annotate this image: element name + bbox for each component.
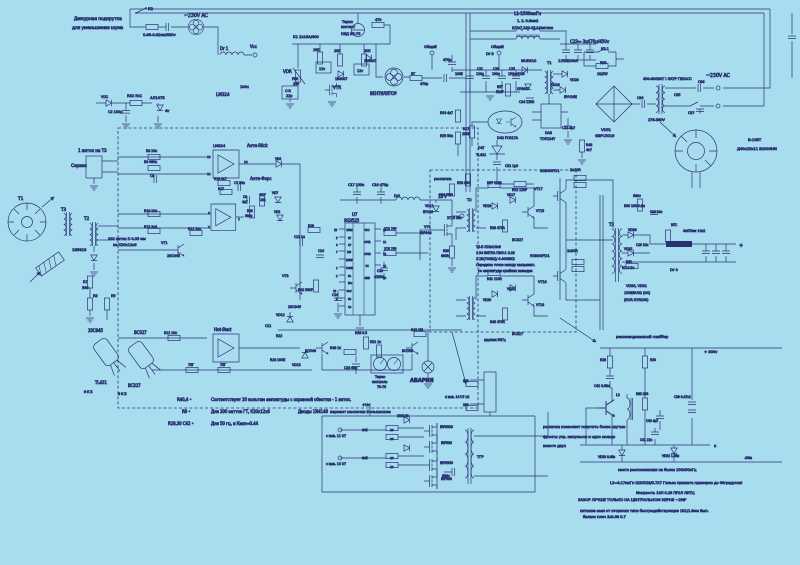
gnd-icon — [154, 124, 162, 128]
schematic-label: DA3 — [545, 131, 552, 135]
schematic-label: 2SC945 — [88, 328, 103, 333]
schematic-label: ВЕНТИЛЯТОР — [370, 91, 397, 96]
gnd-icon — [122, 124, 130, 128]
schematic-label: BC327 — [134, 330, 147, 335]
mosfet-irf530 — [424, 473, 437, 489]
snubber-section — [560, 318, 782, 462]
schematic-label: С29 10н — [636, 243, 648, 247]
schematic-label: 560v — [633, 194, 641, 198]
schematic-label: 12 — [207, 172, 211, 176]
schematic-label: с выв. 11 U7 — [326, 434, 346, 438]
capv-icon — [498, 76, 506, 79]
schematic-label: 380 — [463, 403, 469, 407]
schematic-label: Сервис — [71, 163, 87, 169]
resv-icon — [579, 140, 584, 152]
schematic-label: баланс плеч 2х0.68 0.7 — [583, 515, 626, 519]
capv-icon — [574, 50, 582, 53]
schematic-label: 20 — [390, 465, 394, 469]
schematic-label: R63 200 — [636, 392, 648, 396]
schematic-label: 1 34 ВИТКА ПЭЛ-1 0.28 — [476, 251, 515, 255]
schematic-label: TOP224Y — [539, 137, 556, 141]
schematic-label: 1N4007 — [364, 59, 376, 63]
dio-icon — [275, 197, 281, 203]
schematic-label: Середина точно между выпрямит. — [476, 263, 535, 267]
schematic-label: BYV26E — [564, 95, 577, 99]
schematic-label: раскачка — [434, 176, 452, 181]
capv-icon — [562, 50, 570, 53]
dio-icon — [277, 215, 283, 221]
wire — [94, 226, 118, 270]
wire — [470, 31, 566, 44]
schematic-label: VT15 — [536, 209, 544, 213]
wire — [660, 122, 676, 137]
schematic-label: VD8 — [274, 210, 280, 214]
opamp-anti-force — [211, 204, 236, 231]
schematic-label: контроль — [372, 380, 388, 384]
tl431-icon — [489, 146, 505, 154]
schematic-label: С35 — [674, 93, 680, 97]
wire — [118, 338, 300, 348]
schematic-label: 50B60PD1 — [530, 253, 550, 258]
schematic-label: кружки 50Гц — [484, 338, 506, 342]
caph-icon — [166, 23, 169, 31]
wire — [322, 403, 535, 492]
schematic-label: К1 2х16А/400 — [293, 34, 319, 39]
schematic-label: 4v — [165, 109, 170, 113]
schematic-label: 470р — [443, 58, 451, 62]
schematic-label: 10к — [260, 198, 266, 202]
dio-icon — [510, 197, 516, 203]
wire — [22, 217, 33, 228]
schematic-label: Анти-Stick — [247, 143, 268, 148]
mosfet-irf9530 — [424, 423, 437, 439]
schematic-label: (RUR HY5200) — [624, 298, 649, 302]
caph-icon — [452, 468, 455, 476]
schematic-label: 12 — [383, 264, 387, 268]
capv-icon — [512, 76, 520, 79]
schematic-label: 3 — [208, 211, 210, 215]
schematic-label: Общий — [491, 45, 504, 49]
schematic-label: R17 — [463, 127, 469, 131]
schematic-label: 1 — [336, 266, 338, 270]
resv-icon — [104, 298, 109, 310]
mosfet-irf9530 — [424, 457, 437, 473]
wire — [484, 372, 496, 412]
schematic-label: R41 1М — [411, 328, 423, 332]
schematic-label: Т3 — [608, 222, 614, 227]
schematic-label: 470р — [420, 82, 428, 86]
schematic-label: R9 680к — [144, 160, 157, 164]
capv-icon — [788, 36, 796, 39]
schematic-label: С31 1μ0 — [505, 164, 518, 168]
schematic-label: Dr 1 — [220, 46, 229, 51]
circuit-schematic: Дежурная подкруткадля уменьшения шумаК2~… — [0, 0, 800, 565]
schematic-label: С16 — [332, 293, 338, 297]
resh-icon — [146, 24, 158, 29]
gnd-icon — [578, 160, 586, 164]
npn-icon — [506, 117, 516, 127]
schematic-label: 2SC945 — [288, 305, 301, 309]
schematic-label: VD20 — [483, 298, 491, 302]
resh-icon — [308, 227, 320, 232]
schematic-label: К1.1 — [601, 47, 609, 51]
schematic-label: С3 — [150, 174, 154, 178]
schematic-label: ЗАЗОР ЛУЧШЕ ТОЛЬКО НА ЦЕНТРАЛЬНОМ КЕРНЕ … — [578, 497, 687, 502]
schematic-label: VD30, VD31 — [626, 284, 647, 288]
term-icon — [430, 51, 434, 55]
schematic-label: R28 — [600, 358, 606, 362]
resv-icon — [449, 246, 454, 258]
wire — [580, 348, 782, 462]
schematic-label: 1N4148 — [397, 414, 409, 418]
schematic-label: GND — [365, 276, 371, 280]
wire — [384, 233, 428, 280]
schematic-label: к — [714, 443, 717, 448]
capv-icon — [377, 192, 385, 195]
capv-icon — [122, 111, 130, 114]
schematic-label: 2х30R — [567, 249, 578, 253]
schematic-label: Для 200 ваттов ГТ, К20х12х6 — [211, 409, 270, 414]
schematic-label: VT4 — [424, 225, 431, 229]
schematic-label: 302 витка D 0.35 мм — [108, 237, 146, 241]
schematic-label: VT1 — [161, 241, 167, 245]
resv-icon — [455, 110, 460, 122]
resv-icon — [502, 308, 507, 320]
caph-icon — [154, 175, 157, 183]
schematic-label: 150μ — [508, 72, 516, 76]
wire — [612, 229, 615, 273]
caph-icon — [698, 84, 701, 92]
schematic-label: 680R — [441, 254, 450, 258]
schematic-label: 2 2В(700В2)/ 4-400МК2 — [476, 257, 515, 261]
schematic-label: R12 10к — [164, 331, 177, 335]
led-icon — [157, 105, 163, 111]
capv-icon — [482, 76, 490, 79]
schematic-label: 12v — [357, 69, 363, 73]
gate-transformer-icon — [467, 208, 475, 232]
schematic-label: вариант раскачки Большакова — [330, 409, 391, 414]
mosfet-vt4 — [439, 222, 452, 238]
schematic-label: + 300v — [704, 349, 718, 354]
schematic-label: R12 10к — [188, 227, 201, 231]
schematic-label: R55 56к — [440, 134, 453, 138]
schematic-label: R28 100Е — [270, 358, 285, 362]
schematic-label: Uref — [347, 289, 352, 293]
wire — [135, 12, 137, 14]
schematic-label: OUTB — [364, 252, 371, 256]
schematic-label: R57 — [497, 85, 503, 89]
gnd-icon — [90, 186, 98, 190]
schematic-label: R23 — [247, 209, 253, 213]
wire — [532, 112, 582, 158]
schematic-label: VD7 — [272, 191, 278, 195]
wire — [560, 318, 596, 342]
dio-icon — [492, 291, 498, 297]
wire — [130, 9, 792, 192]
schematic-label: ХТ3 75Р — [384, 227, 397, 231]
schematic-label: 20К — [364, 49, 371, 53]
schematic-label: 70-75 — [377, 385, 386, 389]
resh-icon — [148, 165, 160, 170]
schematic-label: 1 виток на Т3 — [78, 148, 107, 153]
resh-icon — [514, 181, 526, 186]
vcc-terminal — [253, 53, 257, 57]
schematic-label: 278-380V — [648, 118, 665, 122]
schematic-label: R32 5к1 — [127, 93, 143, 98]
schematic-label: вместо двух — [543, 444, 567, 448]
schematic-label: VD51 — [601, 127, 612, 132]
schematic-label: 20К — [334, 49, 341, 53]
schematic-label: Ш7х7 120-15,14витков — [512, 26, 553, 30]
ac-terminal — [716, 86, 720, 90]
schematic-label: 13 — [207, 155, 211, 159]
schematic-label: Hot-Start — [214, 327, 232, 332]
schematic-label: COMP — [346, 266, 354, 270]
schematic-label: контакт — [341, 25, 355, 29]
schematic-label: 100н — [240, 85, 250, 89]
schematic-label: Э К Б — [84, 390, 93, 394]
npn-icon — [316, 342, 328, 354]
schematic-label: R8 10к — [146, 149, 157, 153]
dio-icon — [496, 119, 501, 123]
schematic-label: IRF9530 — [440, 425, 453, 429]
schematic-label: 4к7 — [586, 148, 592, 152]
schematic-label: R3 — [93, 294, 98, 298]
schematic-label: VD11 — [425, 204, 434, 208]
schematic-label: + — [739, 243, 743, 249]
xfv-icon — [90, 222, 98, 246]
schematic-label: Мощность 10Л 0.28 ПР2Л ЛИТЦ — [636, 491, 695, 495]
schematic-label: U7 — [352, 212, 358, 217]
schematic-label: Т3 — [60, 207, 66, 212]
schematic-label: Э К Б — [118, 392, 127, 396]
resv-icon — [363, 337, 368, 349]
schematic-label: С41 22n — [640, 438, 652, 442]
schematic-label: С19 — [377, 269, 383, 273]
tgr-transformer — [468, 428, 471, 484]
schematic-label: SS — [348, 297, 351, 301]
schematic-label: VT17 — [534, 187, 543, 191]
schematic-label: VCC — [365, 228, 370, 232]
schematic-label: VC — [366, 264, 370, 268]
schematic-label: R52 120Р — [512, 188, 527, 192]
schematic-label: Термо — [374, 375, 385, 379]
schematic-label: VD29 — [516, 72, 525, 76]
coil-icon — [220, 52, 244, 55]
schematic-label: R5 — [111, 294, 116, 298]
diode-icon — [106, 100, 112, 106]
schematic-label: 230Р — [462, 132, 470, 136]
caph-icon — [642, 100, 645, 108]
schematic-label: L2 — [616, 393, 620, 397]
schematic-label: R53 390 — [457, 181, 470, 185]
resh-icon — [572, 259, 584, 264]
alarm-lamp-icon — [422, 361, 434, 373]
schematic-label: 11 — [383, 240, 387, 244]
resh-icon — [130, 100, 142, 105]
schematic-label: Dr 3 — [486, 51, 494, 56]
schematic-label: R31 1к — [370, 340, 381, 344]
schematic-label: 6 — [336, 243, 338, 247]
schematic-label: 75Г — [220, 363, 226, 367]
schematic-label: R58 — [600, 61, 606, 65]
schematic-label: TL431 — [94, 380, 107, 385]
schematic-label: R13 2к4 — [144, 225, 157, 229]
schematic-label: C7 33n — [234, 181, 245, 185]
schematic-label: К2 — [148, 6, 154, 11]
wire — [471, 430, 474, 478]
capv-icon — [316, 255, 324, 258]
wire — [656, 86, 659, 112]
schematic-label: R28,30 С42 • — [168, 421, 194, 426]
schematic-label: IRF640 — [420, 231, 432, 235]
schematic-label: C23= 3х470μ/450v — [570, 39, 610, 44]
schematic-label: С40 4μ7 — [646, 419, 658, 423]
schematic-label: 150EBU02 (04) — [624, 291, 651, 295]
schematic-label: VD12 — [276, 313, 285, 317]
transistor-package-icon — [127, 340, 162, 379]
wire — [278, 312, 462, 382]
schematic-label: 380 — [463, 379, 469, 383]
schematic-label: 20 — [390, 456, 394, 460]
schematic-label: VD1 — [101, 95, 108, 99]
schematic-label: Д40х25х11 В2000НМ — [737, 146, 777, 151]
schematic-label: С24 120н — [519, 100, 534, 104]
schematic-label: С22 4μ7 — [562, 126, 575, 130]
schematic-label: место расположения на балке 150А50кГц — [618, 468, 697, 472]
wire — [290, 13, 466, 102]
schematic-label: R37 120R — [487, 181, 503, 185]
schematic-label: NTC — [671, 223, 677, 227]
schematic-label: R43 470R — [490, 320, 506, 324]
schematic-label: 680к — [245, 214, 253, 218]
schematic-label: 1 — [238, 217, 240, 221]
schematic-label: 10/2W — [597, 72, 608, 76]
schematic-label: 1N4007 — [335, 77, 347, 81]
schematic-label: R39 — [443, 249, 449, 253]
capv-icon — [353, 192, 361, 195]
schematic-label: VD21 — [507, 287, 515, 291]
resv-icon — [607, 356, 612, 368]
dio-icon — [433, 206, 439, 212]
schematic-label: RT — [348, 236, 351, 240]
schematic-label: раскачка позволяет получить более крутые — [543, 425, 626, 429]
gnd-icon — [448, 268, 456, 272]
schematic-label: Общий — [424, 45, 437, 49]
gnd-icon — [90, 272, 98, 276]
resv-icon — [505, 84, 510, 96]
main-transformer-core — [615, 228, 618, 282]
schematic-label: ~230V AC — [184, 13, 208, 19]
schematic-label: Т1 — [546, 60, 552, 65]
schematic-label: VDR — [283, 69, 292, 74]
schematic-label: 0.68-0.82мк/630v — [143, 32, 176, 37]
wire — [42, 197, 54, 207]
schematic-label: Т1 — [17, 196, 24, 202]
schematic-label: VD31 — [624, 247, 633, 251]
schematic-label: R10 10к — [144, 209, 157, 213]
schematic-label: VD28 — [570, 78, 579, 82]
schematic-label: 2SC945 — [167, 254, 180, 258]
schematic-label: +Uн — [362, 403, 369, 407]
schematic-label: IN+ — [348, 281, 352, 285]
schematic-label: VT3 — [282, 274, 288, 278]
schematic-label: ~230V AC — [706, 73, 730, 79]
schematic-label: VD18 — [483, 204, 491, 208]
bridge-rectifier-icon — [596, 86, 632, 122]
schematic-label: OUTA — [364, 240, 371, 244]
schematic-label: с выв. 14 U7 — [326, 462, 346, 466]
capv-icon — [448, 62, 456, 65]
schematic-label: SYNC — [347, 228, 354, 232]
schematic-label: Анти-Форс — [250, 176, 271, 181]
schematic-label: С21 — [477, 67, 483, 71]
schematic-label: КЛ-5 Вт — [622, 266, 634, 270]
schematic-label: Термо — [341, 20, 353, 24]
caph-icon — [300, 238, 303, 246]
gate-transformer-icon — [467, 296, 475, 320]
resv-icon — [642, 356, 647, 368]
schematic-label: R48 1к — [330, 346, 341, 350]
opamp-anti-stick — [213, 150, 239, 178]
schematic-label: LM324 — [213, 143, 226, 148]
schematic-label: R60 10R-0.8м — [624, 204, 646, 208]
schematic-label: С28 10н — [650, 210, 662, 214]
schematic-label: L1-1500мкГн — [514, 11, 541, 16]
l2-choke-icon — [627, 398, 633, 420]
schematic-label: 1. 2. 0.8мм2 — [517, 19, 538, 23]
schematic-label: CS — [348, 305, 352, 309]
schematic-label: SG3525 — [344, 218, 360, 223]
schematic-label: BC327 — [128, 383, 141, 388]
schematic-label: 2х20R — [570, 168, 581, 172]
schematic-label: Соответствует 20 вольтам амплитуды с охр… — [211, 397, 351, 402]
schematic-label: R29 — [308, 224, 314, 228]
schematic-label: IRF530 — [441, 441, 452, 445]
schematic-label: С34 — [637, 96, 643, 100]
fan-icon — [385, 68, 403, 86]
schematic-label: R16 4к7 — [214, 177, 227, 181]
schematic-label: фронты упр. импульсов и одно кольцо — [543, 435, 616, 439]
schematic-label: BYV26 — [423, 210, 433, 214]
wire — [145, 7, 147, 9]
schematic-label: 10К — [313, 48, 320, 52]
capv-icon — [606, 376, 614, 379]
wire — [456, 276, 548, 316]
schematic-label: FNR — [292, 77, 299, 81]
wire — [662, 86, 665, 112]
schematic-label: вх2 — [362, 456, 368, 460]
schematic-label: BC327 — [512, 238, 523, 242]
gnd-icon — [486, 96, 494, 100]
wire — [470, 380, 548, 476]
resh-icon — [148, 228, 160, 233]
schematic-label: D42 PC817A — [497, 136, 519, 140]
schematic-label: 7 — [336, 250, 338, 254]
xfv-icon — [545, 70, 553, 94]
schematic-label: R32 560Р — [298, 288, 313, 292]
schematic-label: R61 — [626, 260, 632, 264]
dio-icon — [276, 161, 282, 167]
schematic-label: L2=8.17мкГн Ш20Х28/5.7Х7 Гильза прижата … — [610, 481, 742, 485]
resv-icon — [313, 280, 318, 292]
wire — [622, 235, 736, 262]
schematic-label: 120μ — [476, 72, 484, 76]
schematic-label: DIS — [347, 250, 351, 254]
resv-icon — [455, 132, 460, 144]
schematic-label: С12 1н — [294, 235, 305, 239]
rectifier-vd30 — [628, 232, 634, 238]
